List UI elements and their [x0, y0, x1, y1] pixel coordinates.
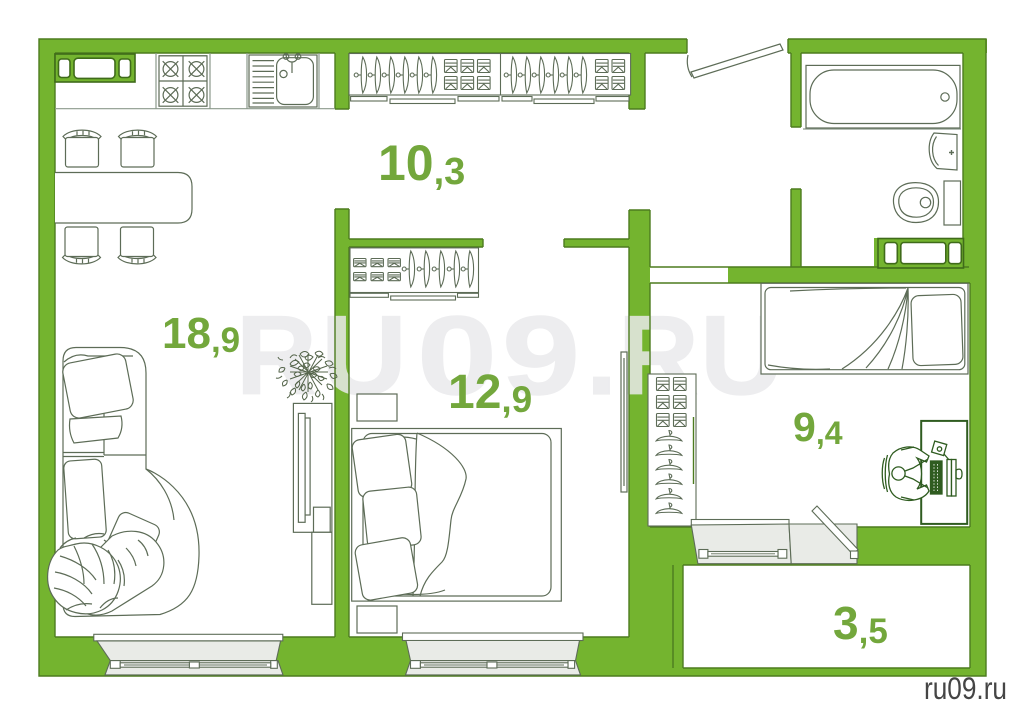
- svg-text:3,5: 3,5: [833, 597, 888, 651]
- svg-text:18,9: 18,9: [162, 309, 240, 360]
- svg-text:ru09.ru: ru09.ru: [924, 670, 1007, 706]
- svg-text:10,3: 10,3: [378, 135, 465, 193]
- svg-text:9,4: 9,4: [793, 404, 843, 451]
